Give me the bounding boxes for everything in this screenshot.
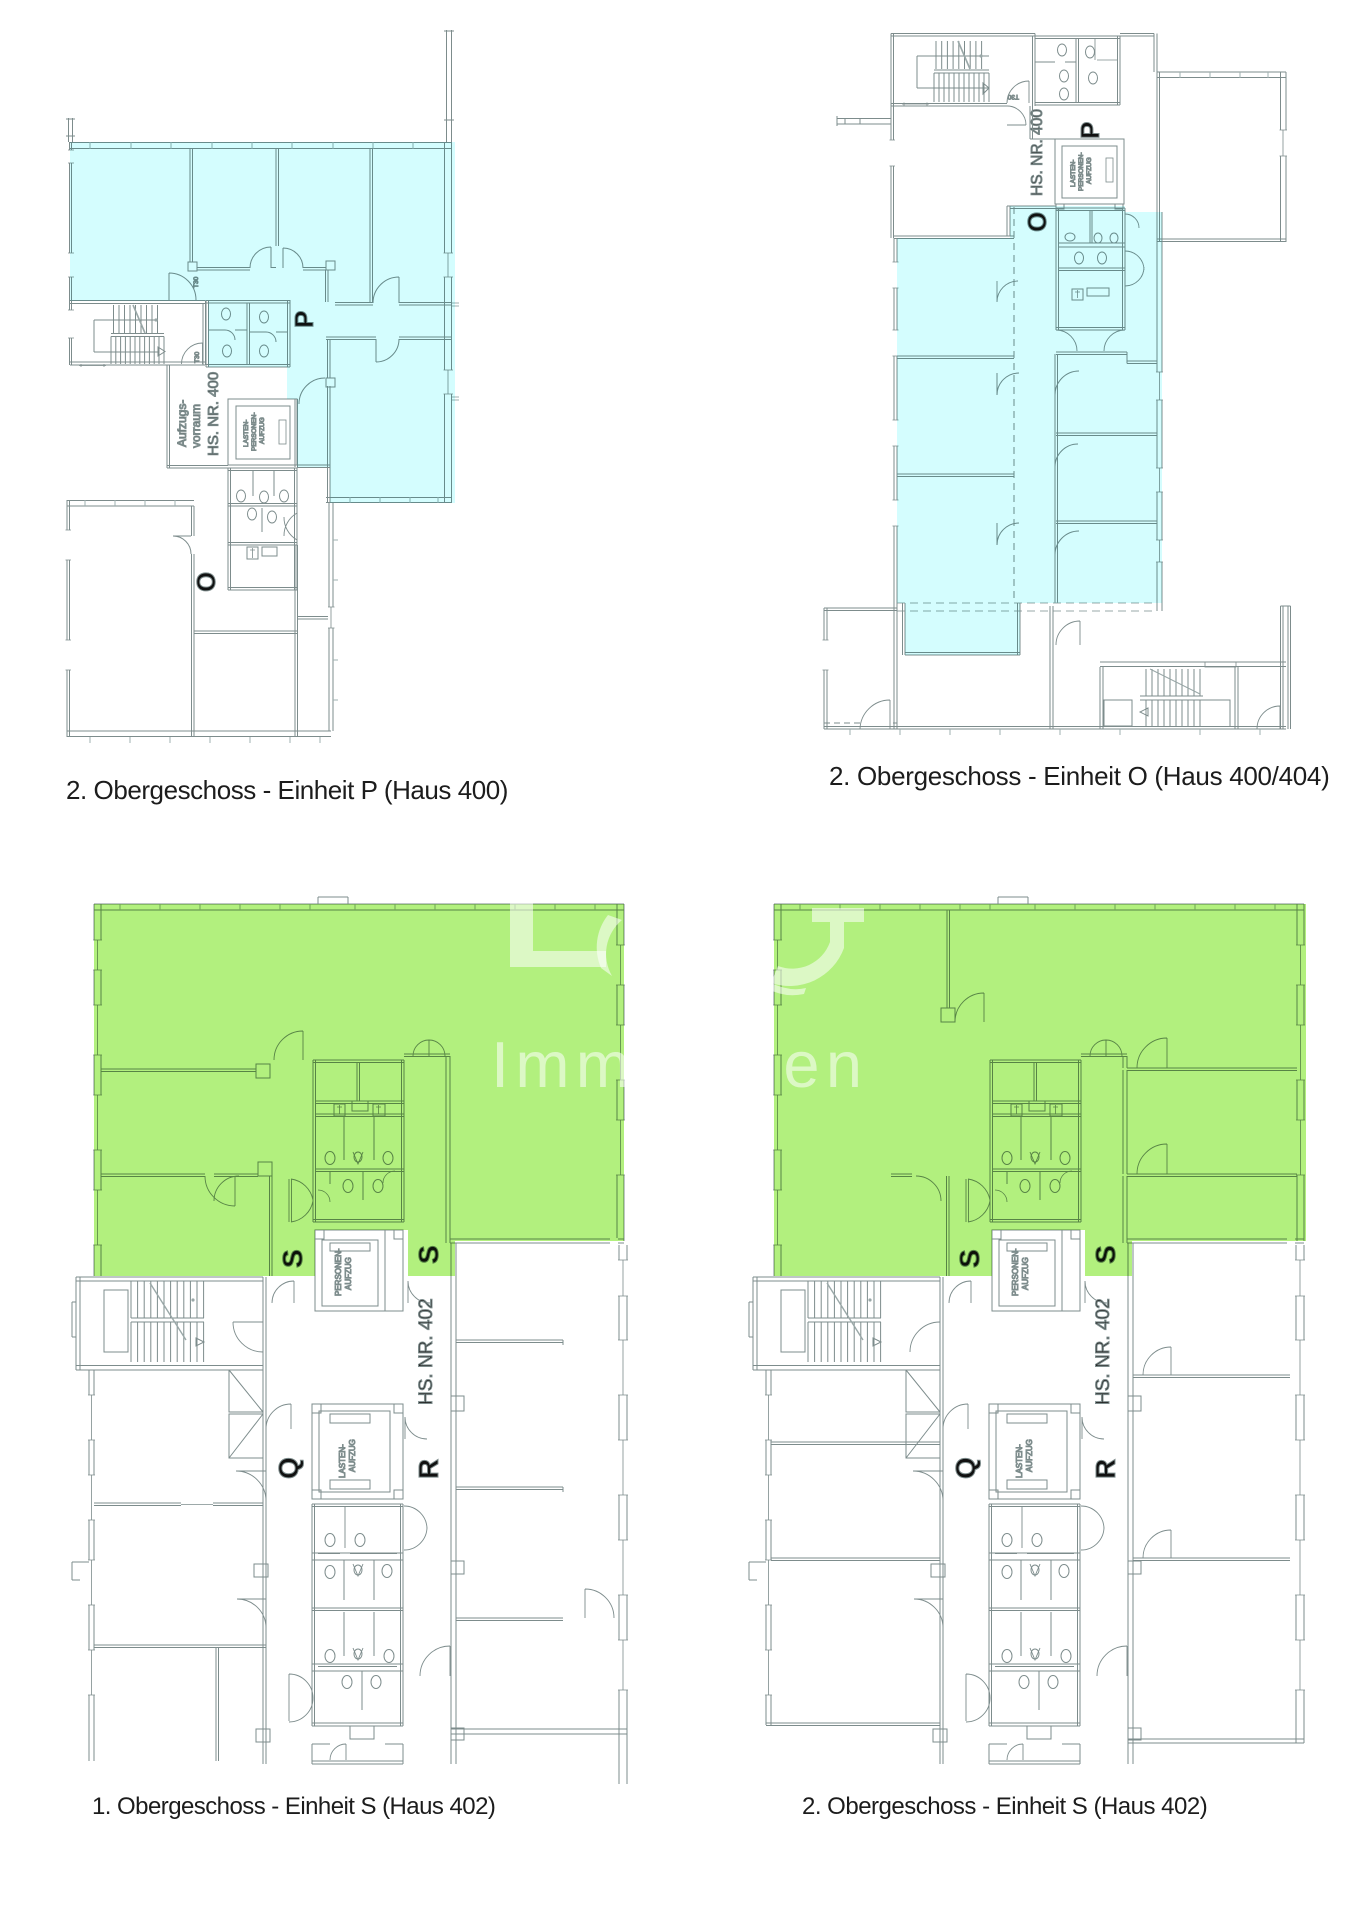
svg-text:Immobilien: Immobilien <box>491 1028 868 1101</box>
